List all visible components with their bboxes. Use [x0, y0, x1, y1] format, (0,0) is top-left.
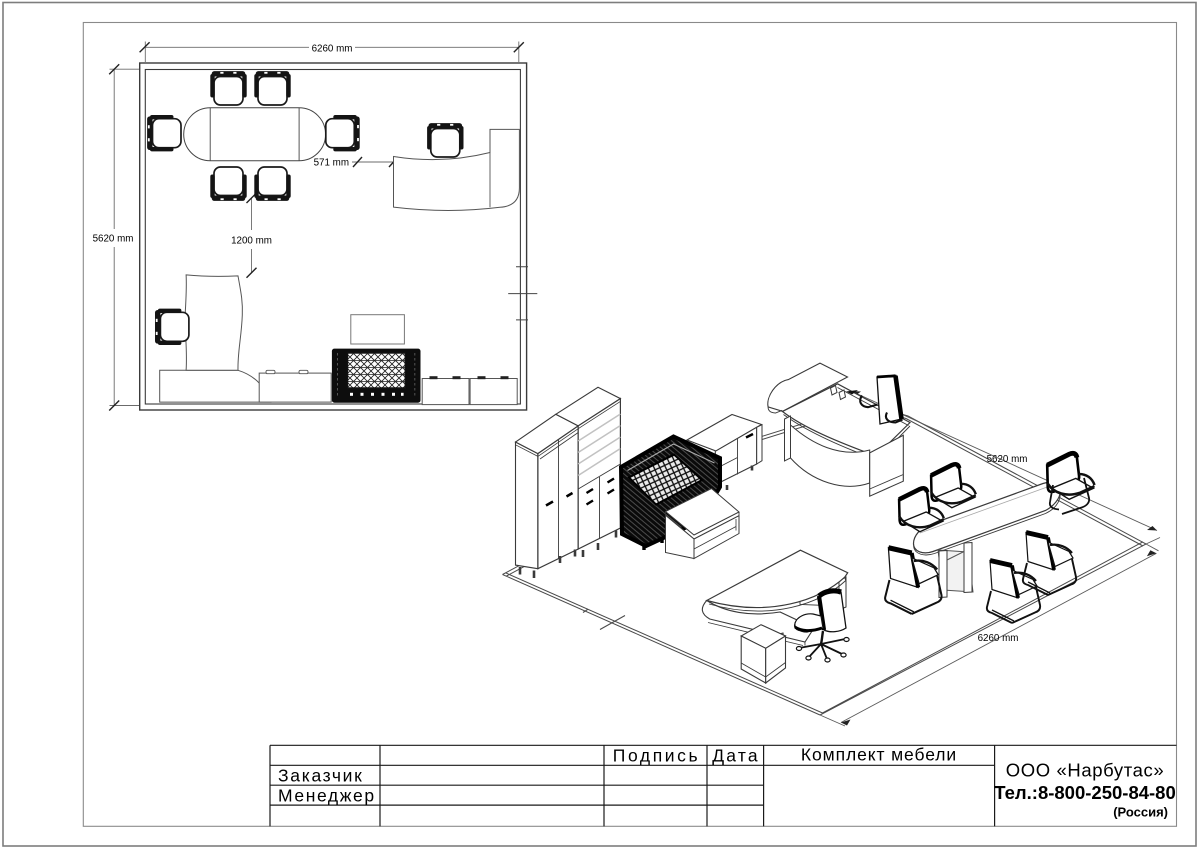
- svg-text:Дата: Дата: [712, 746, 760, 766]
- svg-text:6260 mm: 6260 mm: [312, 44, 353, 55]
- svg-text:6260 mm: 6260 mm: [978, 633, 1019, 644]
- svg-text:Заказчик: Заказчик: [278, 766, 363, 786]
- svg-text:5620 mm: 5620 mm: [987, 454, 1028, 465]
- svg-text:Тел.:8-800-250-84-80: Тел.:8-800-250-84-80: [994, 782, 1176, 803]
- svg-text:Подпись: Подпись: [613, 746, 700, 766]
- svg-text:571 mm: 571 mm: [314, 158, 349, 169]
- svg-text:5620 mm: 5620 mm: [93, 234, 134, 245]
- svg-text:(Россия): (Россия): [1113, 805, 1168, 820]
- svg-text:1200 mm: 1200 mm: [231, 236, 272, 247]
- svg-text:ООО «Нарбутас»: ООО «Нарбутас»: [1006, 760, 1164, 781]
- svg-text:Комплект мебели: Комплект мебели: [801, 745, 957, 765]
- svg-text:Менеджер: Менеджер: [278, 786, 376, 806]
